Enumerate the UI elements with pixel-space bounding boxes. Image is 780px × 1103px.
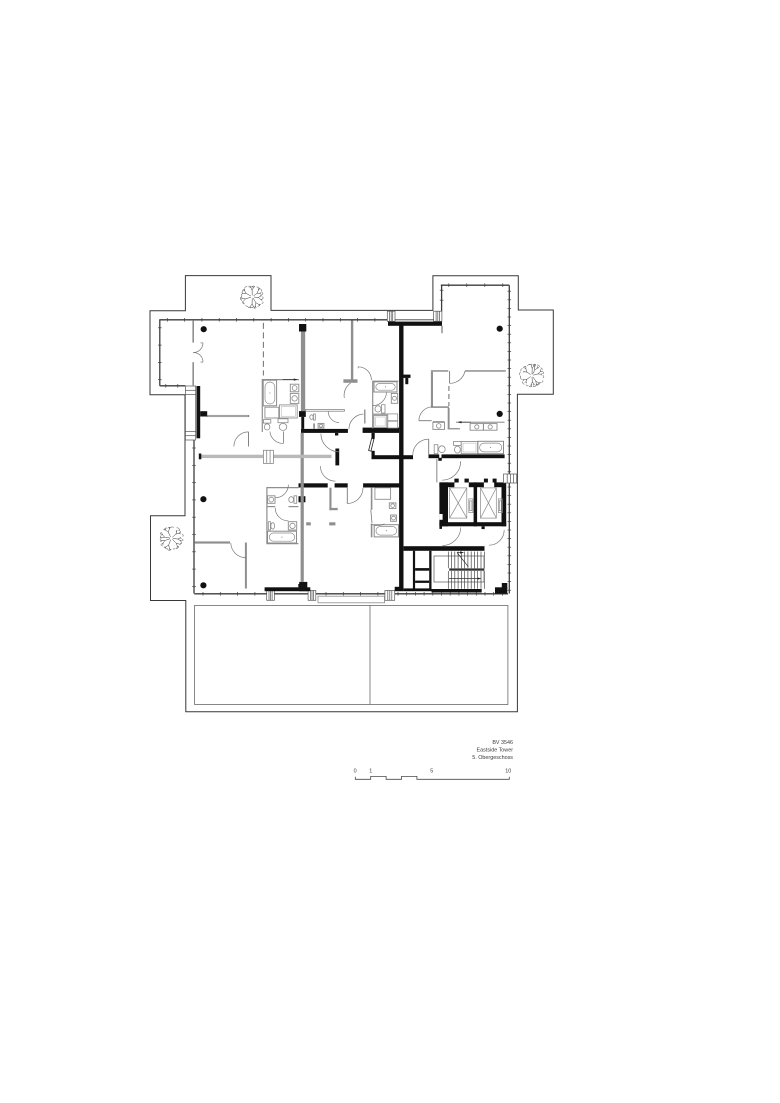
svg-text:10: 10 xyxy=(505,769,511,775)
svg-text:0: 0 xyxy=(354,769,357,775)
svg-text:5: 5 xyxy=(430,769,433,775)
svg-text:BV 3546: BV 3546 xyxy=(492,740,513,746)
svg-text:1: 1 xyxy=(369,769,372,775)
svg-text:5. Obergeschoss: 5. Obergeschoss xyxy=(472,755,513,761)
svg-text:Eastside Tower: Eastside Tower xyxy=(477,747,514,753)
